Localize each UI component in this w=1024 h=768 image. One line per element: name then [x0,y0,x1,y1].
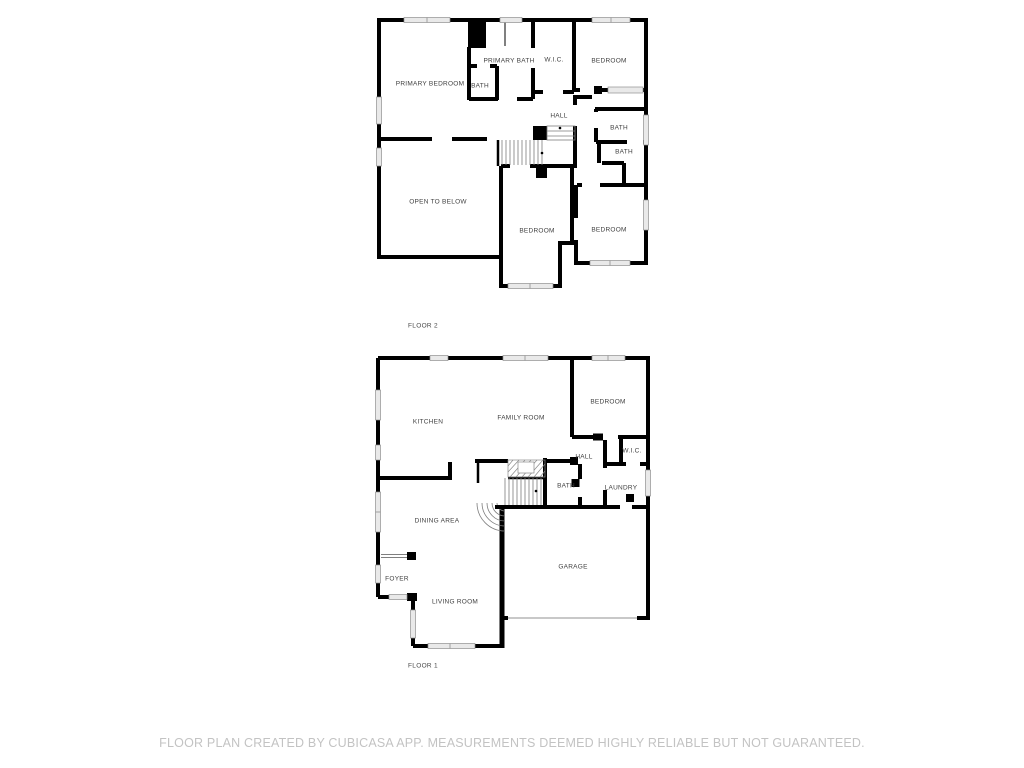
room-label-family-room: FAMILY ROOM [497,415,544,422]
closet-sliding-panel [608,87,643,93]
front-door-post [407,593,417,601]
room-label-open-to-below: OPEN TO BELOW [409,199,467,206]
stair-duct-block [533,126,547,140]
floor-plan-page: PRIMARY BEDROOM PRIMARY BATH BATH W.I.C.… [0,0,1024,768]
room-label-bath-floor1: BATH [557,483,575,490]
room-label-bath-small: BATH [471,83,489,90]
room-label-bedroom-mid: BEDROOM [519,228,554,235]
room-label-wic-floor1: W.I.C. [622,448,641,455]
floor2-title: FLOOR 2 [408,323,438,330]
room-label-wic-floor2: W.I.C. [544,57,563,64]
room-label-garage: GARAGE [558,564,587,571]
floor-plan-drawing [0,0,1024,768]
room-label-bedroom-right: BEDROOM [591,227,626,234]
room-label-primary-bedroom: PRIMARY BEDROOM [396,81,465,88]
room-label-hall-floor1: HALL [575,454,592,461]
room-label-hall-floor2: HALL [550,113,567,120]
room-label-foyer: FOYER [385,576,409,583]
fireplace-block [468,22,486,48]
foyer-railing [381,552,416,560]
room-label-dining-area: DINING AREA [415,518,460,525]
room-label-bedroom-top: BEDROOM [591,58,626,65]
stair-soffit-hatch [508,460,545,477]
floor1-title: FLOOR 1 [408,663,438,670]
room-label-bath-right-upper: BATH [610,125,628,132]
room-label-bedroom-floor1: BEDROOM [590,399,625,406]
room-label-laundry: LAUNDRY [605,485,638,492]
disclaimer-text: FLOOR PLAN CREATED BY CUBICASA APP. MEAS… [159,736,865,750]
floor1-stairs [477,478,541,531]
room-label-primary-bath: PRIMARY BATH [483,58,534,65]
room-label-bath-right-lower: BATH [615,149,633,156]
room-label-living-room: LIVING ROOM [432,599,478,606]
room-label-kitchen: KITCHEN [413,419,443,426]
